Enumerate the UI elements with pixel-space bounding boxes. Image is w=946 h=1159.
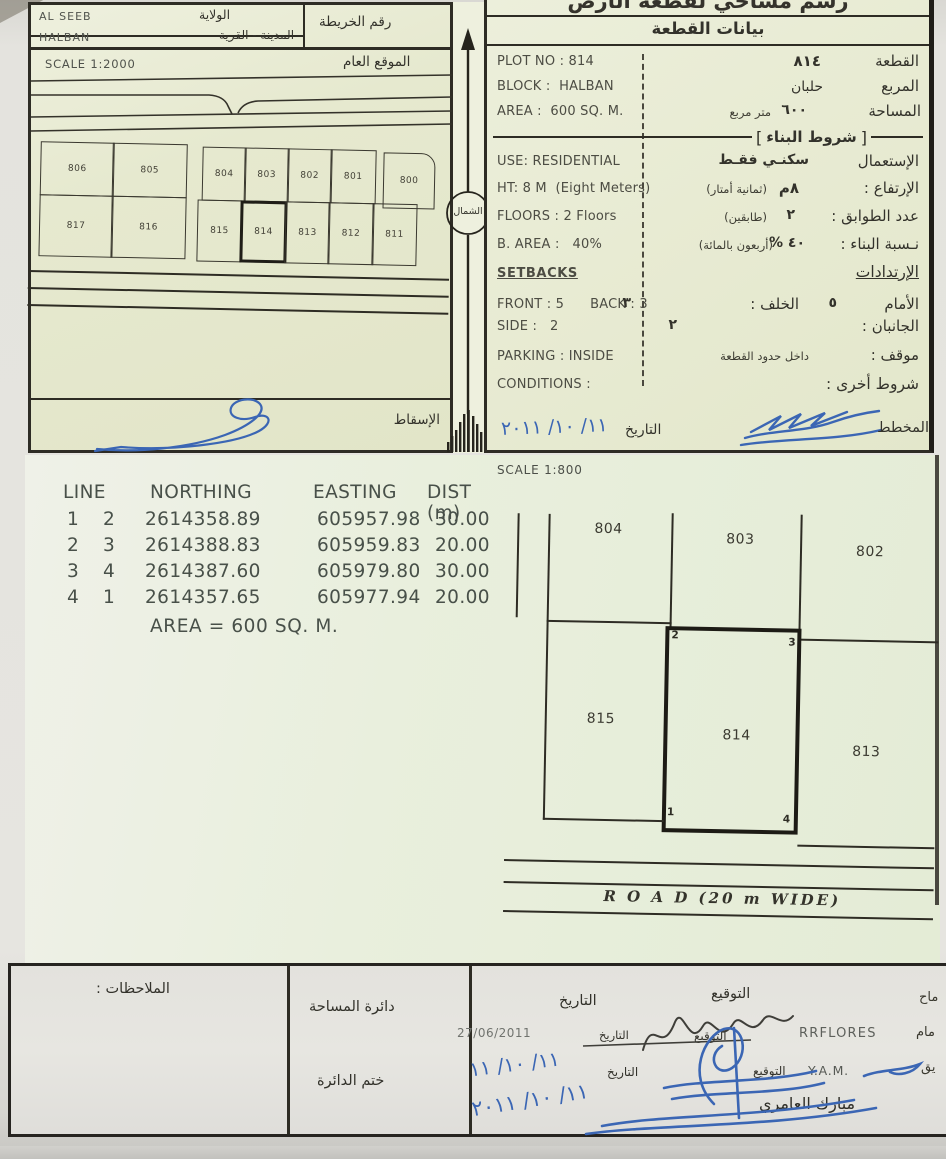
plot-812: 812 bbox=[327, 202, 374, 265]
draftsman-date: 27/06/2011 bbox=[457, 1026, 531, 1040]
back-value-ar: ٣ bbox=[622, 295, 631, 311]
plot-data-panel: رسم مساحي لقطعة الأرض بيانات القطعة PLOT… bbox=[484, 0, 934, 453]
parking-label-ar: موقف : bbox=[871, 346, 919, 364]
side-value-ar: ٢ bbox=[668, 317, 677, 333]
road-curves bbox=[31, 67, 452, 137]
conditions-en: CONDITIONS : bbox=[497, 377, 591, 392]
road-line bbox=[28, 270, 449, 280]
building-header-text: شروط البناء bbox=[766, 128, 857, 146]
center-divider-dashed bbox=[642, 54, 644, 386]
north-arrow-column: الشمال bbox=[453, 2, 484, 453]
use-value-ar: سكنـي فقـط bbox=[719, 152, 809, 168]
conditions-label-ar: شروط أخرى : bbox=[826, 375, 919, 393]
plot-label: 815 bbox=[210, 226, 229, 236]
coords-header-row: LINE NORTHING EASTING DIST (m) bbox=[55, 482, 495, 508]
title-rule bbox=[487, 15, 929, 17]
line-from: 3 bbox=[67, 561, 79, 582]
plot-802: 802 bbox=[287, 148, 333, 203]
northing: 2614357.65 bbox=[145, 587, 261, 608]
front-value-ar: ٥ bbox=[828, 295, 837, 311]
corner-1: 1 bbox=[667, 806, 675, 818]
use-label-ar: الإستعمال bbox=[858, 152, 919, 170]
plot-814-highlighted: 814 bbox=[239, 200, 287, 263]
barea-note-ar: (أربعون بالمائة) bbox=[699, 238, 773, 252]
line-to: 1 bbox=[103, 587, 115, 608]
plot-label: 804 bbox=[215, 169, 234, 179]
bracket-open: [ bbox=[756, 128, 762, 147]
plot-817: 817 bbox=[38, 194, 113, 258]
floors-value-ar: ٢ bbox=[786, 207, 795, 223]
plot-805: 805 bbox=[112, 143, 188, 199]
coords-row: 4 1 2614357.65 605977.94 20.00 bbox=[55, 587, 495, 613]
block-value-ar: حلبان bbox=[791, 79, 823, 95]
corner-4: 4 bbox=[783, 813, 791, 825]
floors-label-ar: عدد الطوابق : bbox=[831, 207, 919, 225]
height-label-ar: الإرتفاع : bbox=[864, 179, 919, 197]
plot-label: 816 bbox=[139, 222, 158, 232]
corner-3: 3 bbox=[788, 636, 796, 648]
plot-date-handwritten: ١١/ ١٠/ ٢٠١١ bbox=[501, 414, 608, 440]
wilaya-value: AL SEEB bbox=[39, 10, 92, 23]
col-easting: EASTING bbox=[313, 482, 397, 503]
header-bottom-rule bbox=[31, 47, 450, 50]
detail-plot-815: 815 bbox=[587, 711, 616, 728]
barea-label-ar: نـسبة البناء : bbox=[840, 235, 919, 253]
detail-plot-804: 804 bbox=[594, 521, 623, 538]
surveyor-role-cut: ماح bbox=[919, 990, 938, 1005]
plot-label: 806 bbox=[68, 164, 87, 174]
road-upper-line bbox=[504, 859, 934, 869]
boundary-813-bottom bbox=[797, 845, 934, 849]
road-line bbox=[28, 287, 449, 297]
plot-811: 811 bbox=[371, 203, 417, 266]
side-en: SIDE : 2 bbox=[497, 319, 559, 334]
col-line: LINE bbox=[63, 482, 106, 503]
projection-signature-scribble bbox=[93, 393, 303, 455]
plot-label: 802 bbox=[300, 171, 319, 181]
setbacks-en: SETBACKS bbox=[497, 266, 578, 281]
bracket-close: ] bbox=[861, 128, 867, 147]
road-lower-line bbox=[503, 910, 933, 920]
document-title: رسم مساحي لقطعة الأرض bbox=[487, 0, 929, 13]
block-left-boundary bbox=[543, 514, 551, 820]
footer-table: الملاحظات : دائرة المساحة ختم الدائرة ال… bbox=[8, 963, 946, 1137]
easting: 605979.80 bbox=[317, 561, 421, 582]
line-from: 4 bbox=[67, 587, 79, 608]
area-label-ar: المساحة bbox=[868, 102, 921, 120]
area-en: AREA : 600 SQ. M. bbox=[497, 104, 623, 119]
plot-data-header-rule bbox=[487, 44, 929, 46]
plot-value-ar: ٨١٤ bbox=[794, 52, 821, 70]
detail-plot-814: 814 bbox=[722, 727, 751, 744]
plot-data-header: بيانات القطعة bbox=[487, 19, 929, 38]
area-value-ar: ٦٠٠ bbox=[781, 102, 807, 118]
map-edge-line bbox=[516, 513, 520, 617]
plot-804: 804 bbox=[202, 147, 247, 202]
road-line bbox=[27, 304, 448, 314]
location-map-panel: AL SEEB HALBAN الولاية المدينة - القرية … bbox=[28, 2, 453, 453]
plot-label: 814 bbox=[254, 227, 273, 237]
boundary-804-815 bbox=[547, 620, 672, 624]
barea-en: B. AREA : 40% bbox=[497, 237, 602, 252]
line-from: 1 bbox=[67, 509, 79, 530]
plot-label: 803 bbox=[257, 170, 276, 180]
dist: 30.00 bbox=[435, 561, 490, 582]
northing: 2614387.60 bbox=[145, 561, 261, 582]
date-header: التاريخ bbox=[559, 993, 597, 1009]
coords-row: 3 4 2614387.60 605979.80 30.00 bbox=[55, 561, 495, 587]
area-unit-ar: متر مربع bbox=[730, 105, 771, 119]
survey-dept-label: دائرة المساحة bbox=[309, 999, 395, 1015]
footer-divider-1 bbox=[287, 966, 290, 1134]
detail-map: 804 803 802 815 814 813 2 3 1 4 R O A D … bbox=[497, 497, 941, 935]
easting: 605959.83 bbox=[317, 535, 421, 556]
plot-815: 815 bbox=[196, 200, 242, 263]
boundary-803-802 bbox=[798, 515, 802, 641]
plot-label: 811 bbox=[385, 229, 404, 239]
plot-label: 800 bbox=[400, 176, 419, 186]
plot-date-label: التاريخ bbox=[625, 422, 661, 438]
col-northing: NORTHING bbox=[150, 482, 252, 503]
coords-row: 2 3 2614388.83 605959.83 20.00 bbox=[55, 535, 495, 561]
plot-801: 801 bbox=[330, 149, 377, 204]
plot-816: 816 bbox=[110, 196, 186, 260]
plot-label: 813 bbox=[298, 228, 317, 238]
plot-label: 817 bbox=[67, 221, 86, 231]
plot-803: 803 bbox=[244, 147, 290, 202]
back-label-ar: الخلف : bbox=[750, 295, 799, 313]
planner-signature-scribble bbox=[739, 404, 889, 452]
coordinates-table: LINE NORTHING EASTING DIST (m) 1 2 26143… bbox=[55, 482, 500, 652]
dist: 20.00 bbox=[435, 587, 490, 608]
notes-label: الملاحظات : bbox=[96, 981, 170, 997]
city-value: HALBAN bbox=[39, 31, 90, 44]
bracket-rule-left bbox=[493, 136, 752, 138]
projection-label: الإسقاط bbox=[394, 412, 440, 428]
header-divider-v bbox=[303, 5, 305, 47]
detail-map-scale: SCALE 1:800 bbox=[497, 463, 583, 477]
floors-note-ar: (طابقين) bbox=[724, 210, 767, 224]
front-label-ar: الأمام bbox=[884, 295, 919, 313]
boundary-804-803 bbox=[669, 513, 673, 629]
plot-800: 800 bbox=[382, 152, 435, 209]
line-to: 3 bbox=[103, 535, 115, 556]
approver-signature-scribble bbox=[546, 1014, 936, 1149]
block-en: BLOCK : HALBAN bbox=[497, 79, 614, 94]
line-to: 4 bbox=[103, 561, 115, 582]
dept-stamp-label: ختم الدائرة bbox=[317, 1073, 384, 1089]
side-label-ar: الجانبان : bbox=[862, 317, 919, 335]
survey-document-scan: AL SEEB HALBAN الولاية المدينة - القرية … bbox=[0, 0, 946, 1159]
height-en: HT: 8 M (Eight Meters) bbox=[497, 181, 650, 196]
boundary-815-bottom bbox=[543, 818, 664, 822]
corner-2: 2 bbox=[671, 629, 679, 641]
dist: 20.00 bbox=[435, 535, 490, 556]
dist: 30.00 bbox=[435, 509, 490, 530]
parking-en: PARKING : INSIDE bbox=[497, 349, 614, 364]
plot-label: 801 bbox=[344, 172, 363, 182]
coords-area-row: AREA = 600 SQ. M. bbox=[55, 616, 495, 642]
easting: 605977.94 bbox=[317, 587, 421, 608]
height-value-ar: ٨م bbox=[779, 179, 799, 197]
area-total: AREA = 600 SQ. M. bbox=[150, 616, 338, 637]
height-note-ar: (ثمانية أمتار) bbox=[706, 182, 767, 196]
northing: 2614388.83 bbox=[145, 535, 261, 556]
plot-813: 813 bbox=[284, 201, 330, 264]
use-en: USE: RESIDENTIAL bbox=[497, 154, 620, 169]
coords-row: 1 2 2614358.89 605957.98 30.00 bbox=[55, 509, 495, 535]
location-plots-group: 806 805 804 803 802 801 800 817 816 815 … bbox=[27, 133, 452, 342]
paper-bottom-edge bbox=[0, 1146, 946, 1159]
bracket-rule-right bbox=[871, 136, 923, 138]
plot-label: 812 bbox=[342, 229, 361, 239]
parking-value-ar: داخل حدود القطعة bbox=[720, 349, 809, 363]
detail-plot-802: 802 bbox=[856, 544, 885, 561]
building-conditions-header: [ شروط البناء ] bbox=[493, 126, 923, 148]
plot-label: 805 bbox=[140, 165, 159, 175]
planner-label: المخطط bbox=[877, 420, 929, 436]
detail-plot-813: 813 bbox=[852, 744, 881, 761]
block-label-ar: المربع bbox=[881, 77, 919, 95]
line-to: 2 bbox=[103, 509, 115, 530]
line-from: 2 bbox=[67, 535, 79, 556]
plot-no-en: PLOT NO : 814 bbox=[497, 54, 594, 69]
easting: 605957.98 bbox=[317, 509, 421, 530]
setbacks-label-ar: الإرتدادات bbox=[856, 263, 919, 281]
floors-en: FLOORS : 2 Floors bbox=[497, 209, 617, 224]
barea-value-ar: ٤٠ % bbox=[769, 235, 805, 251]
boundary-802-813 bbox=[798, 639, 938, 643]
city-label: المدينة - القرية bbox=[219, 28, 294, 42]
plot-806: 806 bbox=[40, 141, 115, 197]
map-number-label: رقم الخريطة bbox=[319, 14, 391, 30]
detail-plot-803: 803 bbox=[726, 531, 755, 548]
plot-label-ar: القطعة bbox=[875, 52, 919, 70]
northing: 2614358.89 bbox=[145, 509, 261, 530]
wilaya-label: الولاية bbox=[199, 7, 230, 22]
road-text: R O A D (20 m WIDE) bbox=[557, 886, 887, 910]
